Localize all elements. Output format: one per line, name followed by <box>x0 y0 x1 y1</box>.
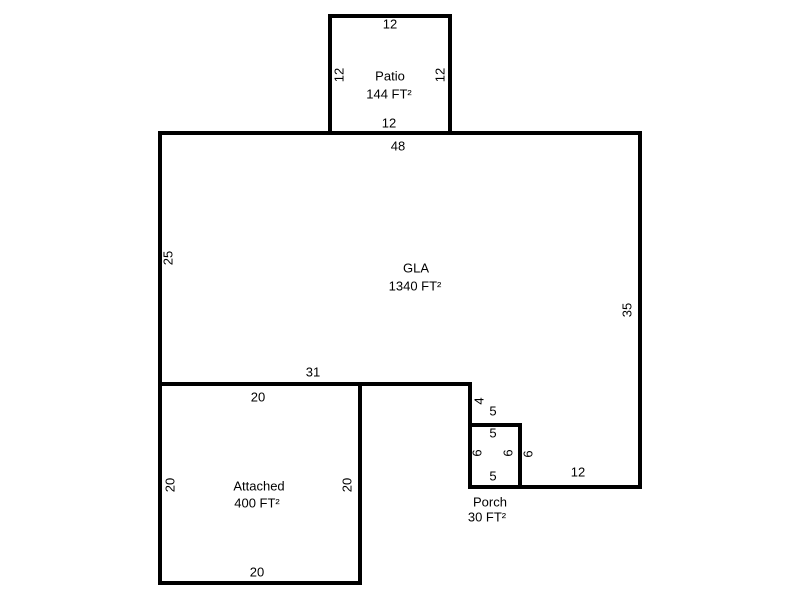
gla-dim-bottom-left: 31 <box>306 366 320 379</box>
porch-area: 30 FT² <box>468 511 506 524</box>
attached-dim-top: 20 <box>251 391 265 404</box>
patio-area: 144 FT² <box>366 88 412 101</box>
gla-dim-bottom-right: 12 <box>571 466 585 479</box>
attached-dim-bottom: 20 <box>250 566 264 579</box>
porch-dim-top: 5 <box>489 427 496 440</box>
gla-dim-step-vertical: 4 <box>473 397 486 404</box>
gla-dim-right: 35 <box>621 303 634 317</box>
gla-dim-porch-right: 6 <box>522 450 535 457</box>
attached-dim-left: 20 <box>164 478 177 492</box>
gla-name: GLA <box>403 262 429 275</box>
patio-name: Patio <box>375 70 405 83</box>
gla-outline <box>160 133 640 487</box>
gla-dim-top: 48 <box>391 140 405 153</box>
attached-name: Attached <box>233 480 284 493</box>
patio-dim-bottom: 12 <box>382 117 396 130</box>
porch-dim-left: 6 <box>471 449 484 456</box>
gla-dim-left: 25 <box>162 251 175 265</box>
patio-dim-right: 12 <box>434 68 447 82</box>
gla-area: 1340 FT² <box>389 280 442 293</box>
attached-area: 400 FT² <box>234 497 280 510</box>
attached-dim-right: 20 <box>341 478 354 492</box>
floorplan-sketch: 12 12 12 Patio 144 FT² 12 48 25 35 GLA 1… <box>0 0 800 600</box>
porch-dim-right: 6 <box>502 449 515 456</box>
patio-dim-left: 12 <box>333 68 346 82</box>
gla-dim-step-horizontal: 5 <box>489 405 496 418</box>
porch-dim-bottom: 5 <box>489 470 496 483</box>
porch-name: Porch <box>473 496 507 509</box>
patio-dim-top: 12 <box>383 18 397 31</box>
